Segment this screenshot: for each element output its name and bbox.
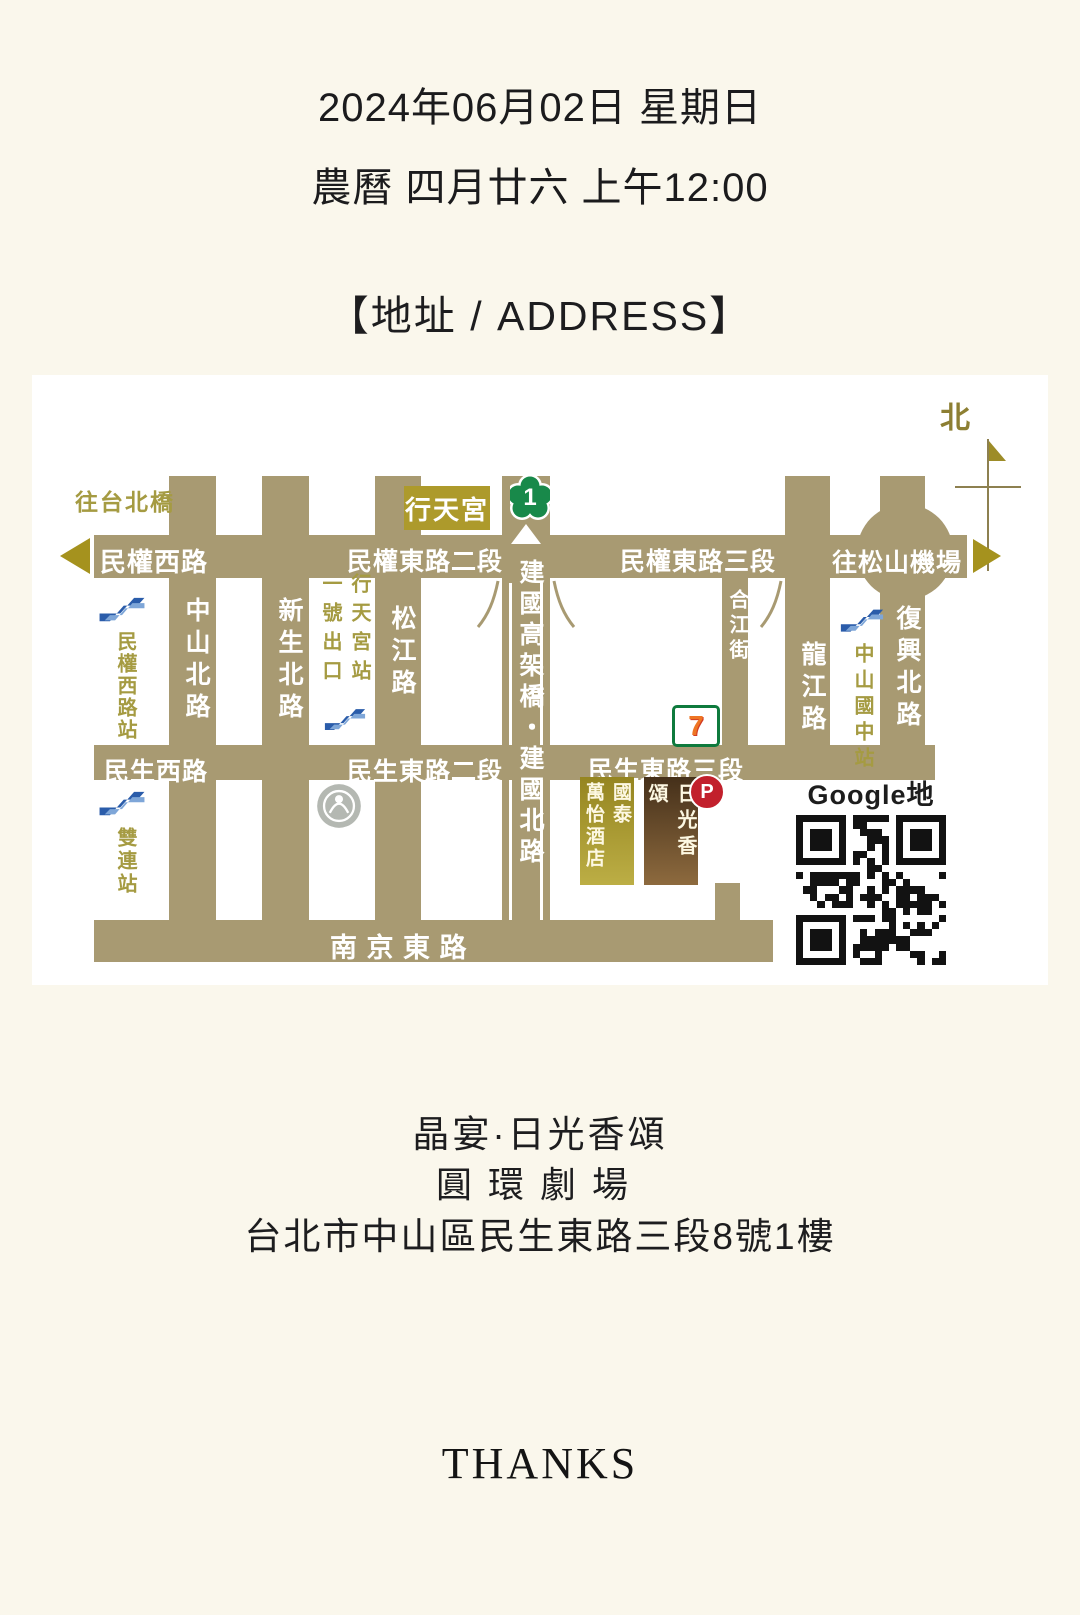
xingtian-exit-col1: 行天宮站 xyxy=(345,573,374,689)
arrow-right-icon xyxy=(973,539,1001,573)
xingtian-temple-badge: 行天宮 xyxy=(404,486,490,530)
compass-north-label: 北 xyxy=(940,393,970,437)
label-fuxing-north: 復興北路 xyxy=(889,605,925,733)
hotel-name-col2: 萬怡酒店 xyxy=(580,782,607,885)
label-to-taipei-bridge: 往台北橋 xyxy=(75,483,175,517)
lunar-date-time: 農曆 四月廿六 上午12:00 xyxy=(0,155,1080,213)
arrow-left-icon xyxy=(60,538,90,574)
hotel-block: 國泰 萬怡酒店 xyxy=(580,777,634,885)
mrt-logo-icon xyxy=(836,603,888,639)
mrt-logo-icon xyxy=(94,591,150,629)
seven-eleven-7: 7 xyxy=(688,712,704,740)
hotel-block-text: 國泰 萬怡酒店 xyxy=(580,777,634,885)
mrt-logo-icon xyxy=(320,703,370,737)
label-nanjing-east: 南 京 東 路 xyxy=(330,926,468,965)
label-zhongshan-north: 中山北路 xyxy=(178,597,214,725)
thanks-text: THANKS xyxy=(0,1438,1080,1489)
hotel-name-col1: 國泰 xyxy=(607,782,634,885)
parking-icon: P xyxy=(689,774,725,810)
label-longjiang: 龍江路 xyxy=(794,641,830,737)
xingtian-exit-label: 行天宮站 一號出口 xyxy=(316,573,374,689)
compass-crossbar xyxy=(955,486,1021,488)
starbucks-logo-icon xyxy=(316,783,362,829)
venue-address: 台北市中山區民生東路三段8號1樓 xyxy=(0,1206,1080,1260)
svg-text:1: 1 xyxy=(523,484,536,511)
label-minquan-west: 民權西路 xyxy=(100,542,208,579)
invitation-page: { "header": { "date_line": "2024年06月02日 … xyxy=(0,0,1080,1615)
event-date: 2024年06月02日 星期日 xyxy=(0,75,1080,133)
label-minsheng-west: 民生西路 xyxy=(104,752,208,788)
highway-1-shield-icon: 1 xyxy=(510,474,550,522)
location-map: 民權西路 民權東路二段 民權東路三段 往松山機場 民生西路 民生東路二段 民生東… xyxy=(32,375,1048,985)
ramp-triangle-icon xyxy=(511,524,541,544)
xingtian-exit-col2: 一號出口 xyxy=(316,573,345,689)
venue-hall: 圓環劇場 xyxy=(0,1156,1080,1208)
compass-flag-icon xyxy=(989,441,1006,461)
label-songjiang: 松江路 xyxy=(384,605,420,701)
venue-name: 晶宴·日光香頌 xyxy=(0,1104,1080,1158)
label-jianguo: 建國高架橋・建國北路 xyxy=(512,559,548,869)
qr-code xyxy=(796,815,946,965)
seven-eleven-logo-icon: 7 xyxy=(672,705,720,747)
label-minquan-east-3: 民權東路三段 xyxy=(620,542,776,578)
label-to-songshan-airport: 往松山機場 xyxy=(832,543,962,579)
label-zhongshan-junior-station: 中山國中站 xyxy=(848,643,877,773)
label-hejiang: 合江街 xyxy=(723,589,752,664)
address-heading: 【地址 / ADDRESS】 xyxy=(0,282,1080,342)
mrt-logo-icon xyxy=(94,785,150,823)
label-minsheng-east-2: 民生東路二段 xyxy=(347,752,503,788)
label-minquan-west-station: 民權西路站 xyxy=(111,631,140,741)
label-shuanglian-station: 雙連站 xyxy=(111,827,140,896)
label-xinsheng-north: 新生北路 xyxy=(271,597,307,725)
